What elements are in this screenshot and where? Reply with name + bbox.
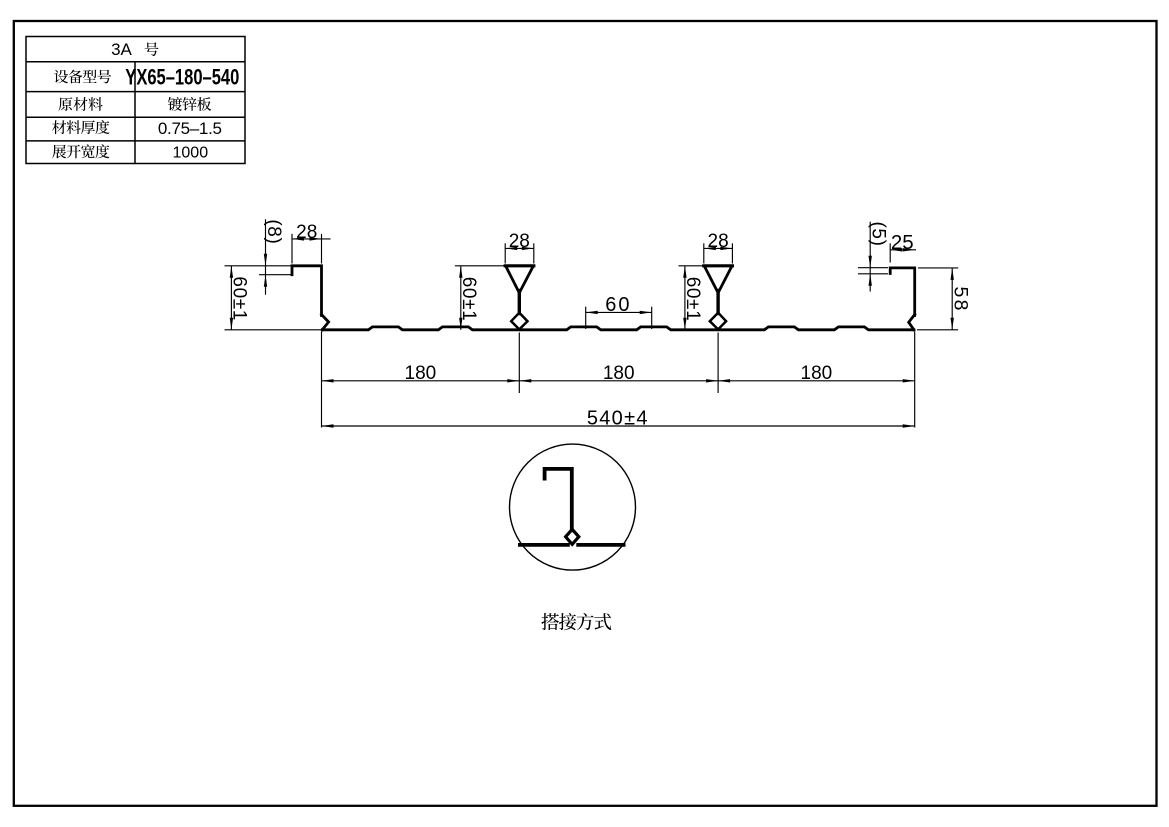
svg-text:540±4: 540±4 [587,407,649,429]
svg-text:(5): (5) [867,221,888,246]
svg-text:60: 60 [605,294,631,316]
svg-text:0.75–1.5: 0.75–1.5 [158,119,222,138]
svg-text:180: 180 [603,363,635,384]
svg-text:1000: 1000 [173,144,209,161]
svg-text:180: 180 [405,363,437,384]
svg-text:YX65–180–540: YX65–180–540 [125,65,239,90]
svg-text:58: 58 [949,286,971,313]
svg-text:60±1: 60±1 [682,277,703,322]
svg-text:(8): (8) [263,219,284,244]
svg-text:60±1: 60±1 [458,277,479,322]
svg-text:28: 28 [509,231,530,252]
svg-text:25: 25 [891,231,914,254]
svg-text:180: 180 [801,363,833,384]
svg-text:28: 28 [708,231,729,252]
svg-text:60±1: 60±1 [229,276,250,321]
svg-text:3A: 3A [111,40,132,59]
svg-text:28: 28 [296,222,317,243]
